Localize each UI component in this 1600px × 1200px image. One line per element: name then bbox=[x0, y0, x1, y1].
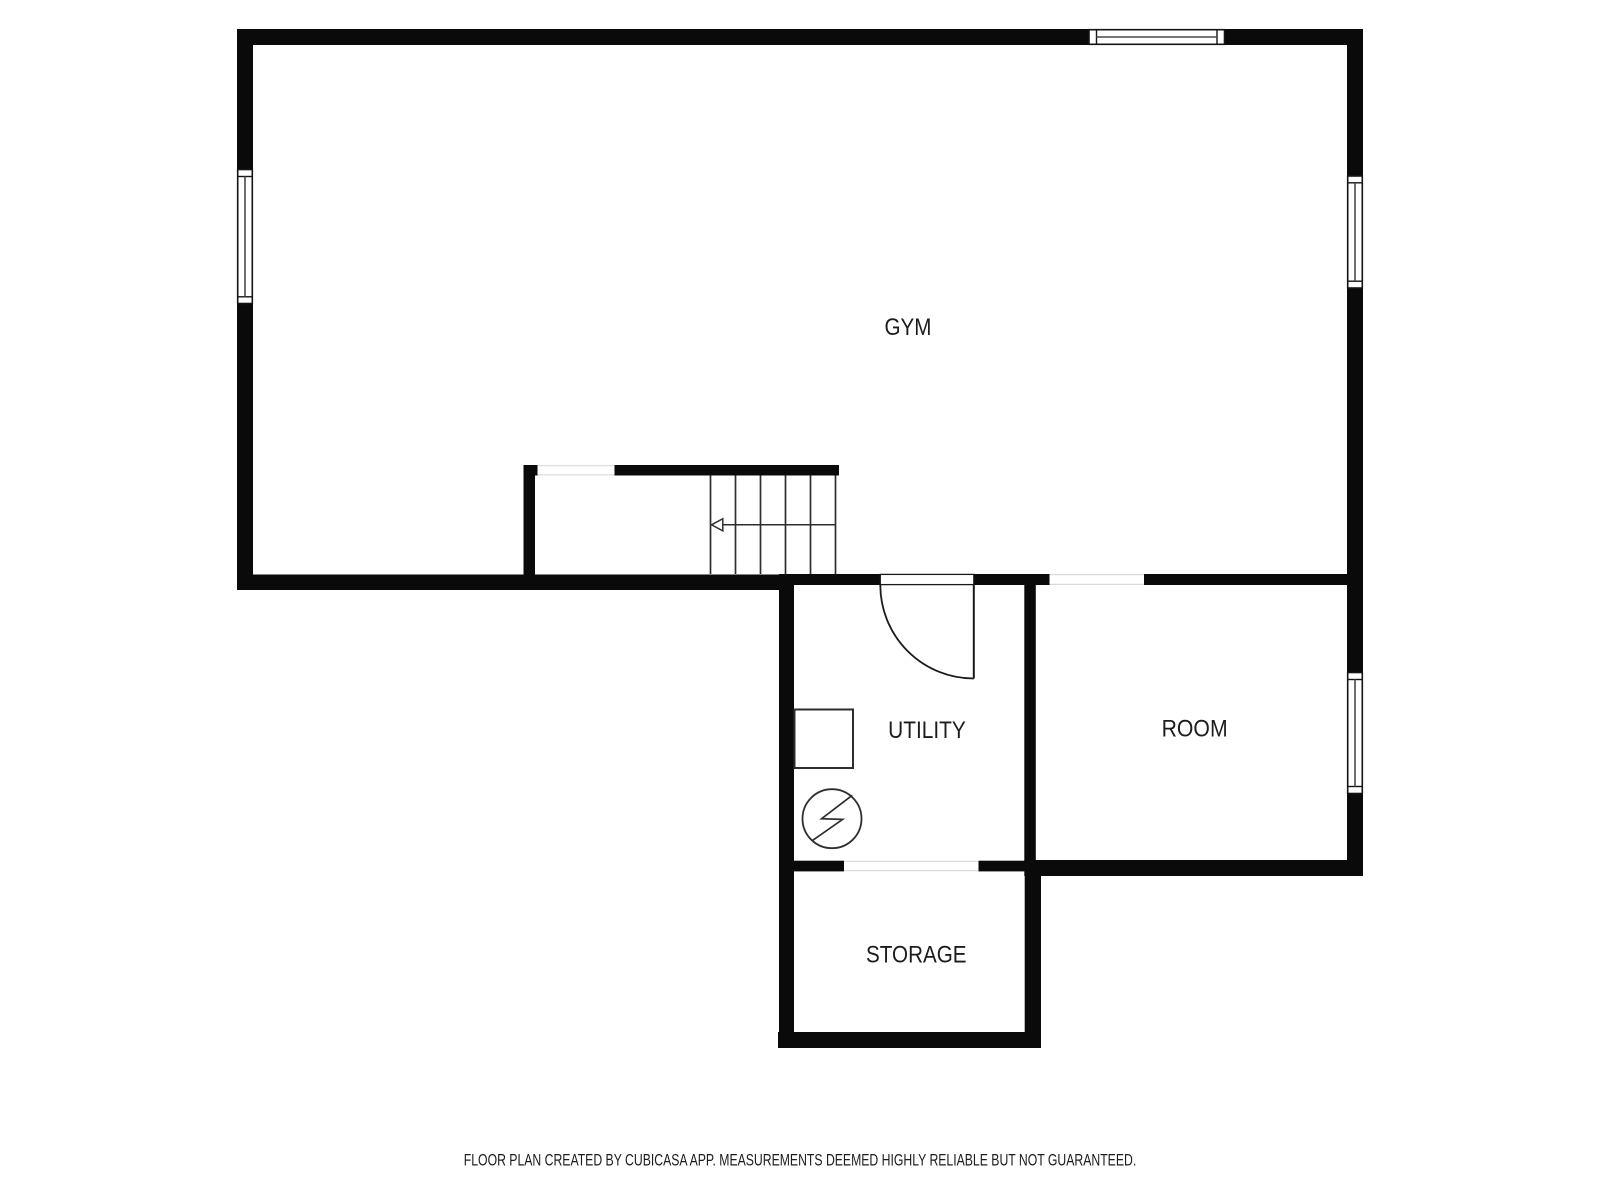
svg-text:STORAGE: STORAGE bbox=[866, 941, 967, 968]
svg-text:FLOOR PLAN CREATED BY CUBICASA: FLOOR PLAN CREATED BY CUBICASA APP. MEAS… bbox=[464, 1152, 1136, 1170]
svg-text:UTILITY: UTILITY bbox=[888, 717, 966, 744]
svg-text:ROOM: ROOM bbox=[1162, 714, 1228, 742]
svg-text:GYM: GYM bbox=[885, 314, 932, 341]
